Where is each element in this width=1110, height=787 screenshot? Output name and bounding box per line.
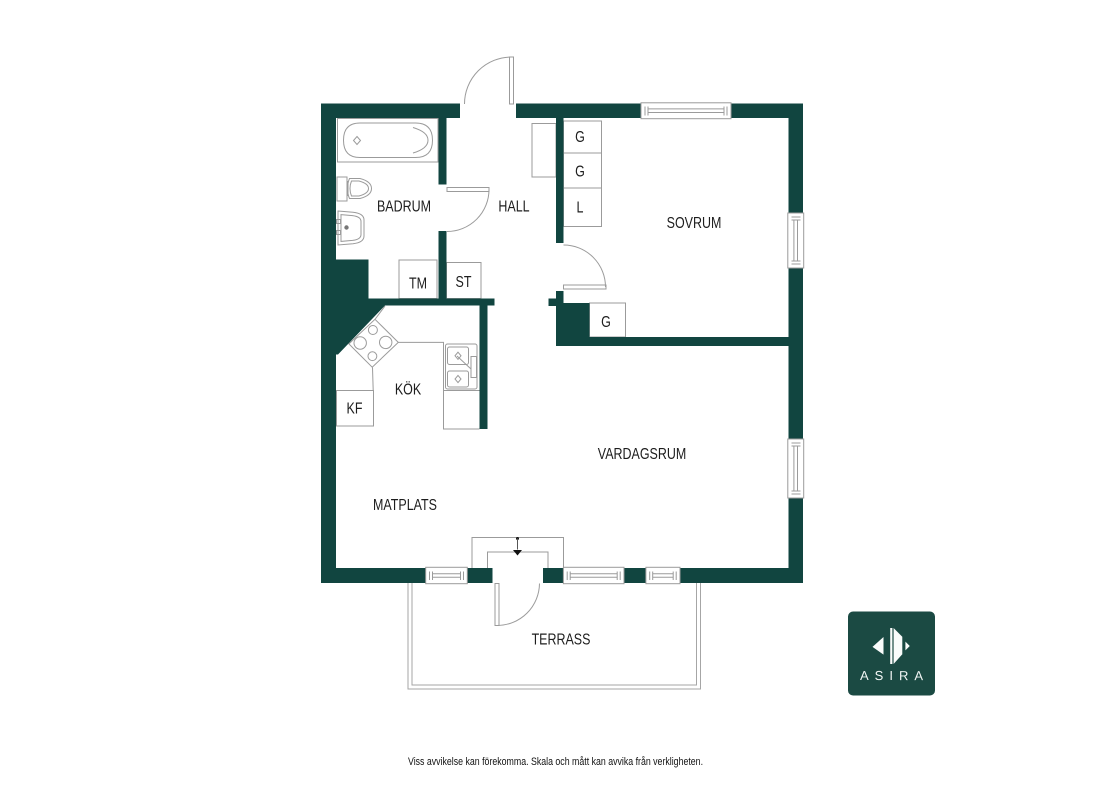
svg-text:KF: KF xyxy=(347,400,363,418)
svg-text:VARDAGSRUM: VARDAGSRUM xyxy=(598,446,686,464)
svg-text:G: G xyxy=(575,163,585,181)
svg-text:BADRUM: BADRUM xyxy=(377,198,431,216)
svg-text:HALL: HALL xyxy=(498,198,529,216)
svg-text:TM: TM xyxy=(409,275,427,293)
svg-text:Viss avvikelse kan förekomma.: Viss avvikelse kan förekomma. Skala och … xyxy=(408,756,703,768)
svg-text:MATPLATS: MATPLATS xyxy=(373,497,437,515)
svg-text:TERRASS: TERRASS xyxy=(532,631,591,649)
svg-text:KÖK: KÖK xyxy=(395,379,422,399)
svg-text:SOVRUM: SOVRUM xyxy=(667,215,722,233)
svg-text:G: G xyxy=(601,314,611,332)
svg-text:ASIRA: ASIRA xyxy=(860,668,929,683)
svg-text:ST: ST xyxy=(456,274,472,292)
svg-text:G: G xyxy=(575,129,585,147)
svg-text:L: L xyxy=(577,199,584,217)
